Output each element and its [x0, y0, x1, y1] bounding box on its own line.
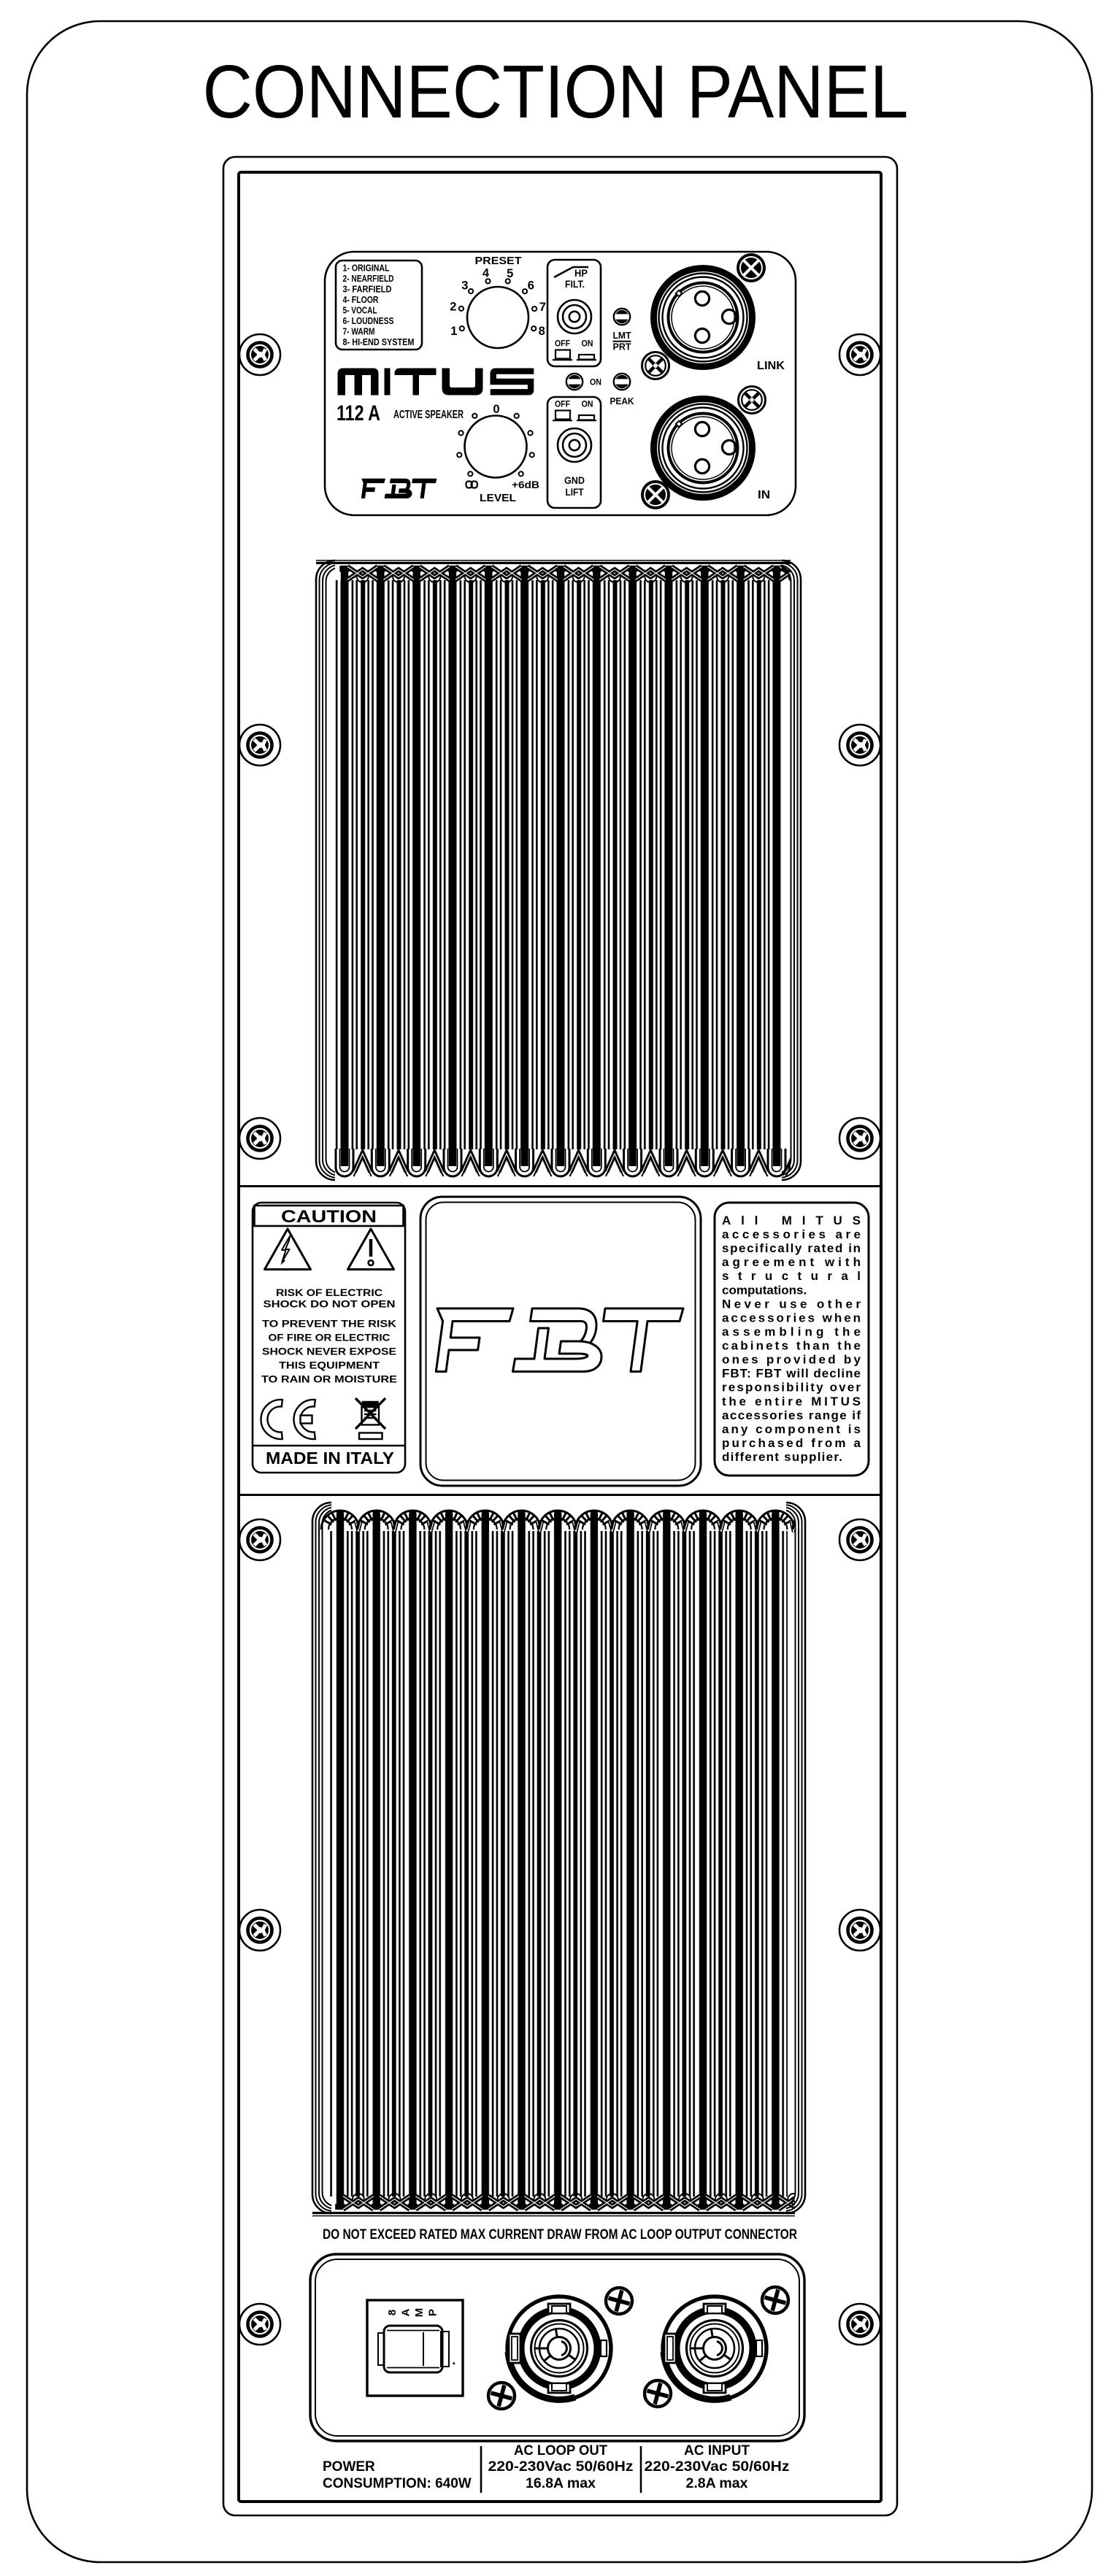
svg-text:3: 3 — [461, 279, 468, 293]
svg-text:4- FLOOR: 4- FLOOR — [343, 295, 379, 305]
svg-text:220-230Vac 50/60Hz: 220-230Vac 50/60Hz — [645, 2459, 790, 2475]
svg-text:LIFT: LIFT — [566, 487, 585, 498]
svg-text:CAUTION: CAUTION — [281, 1207, 377, 1227]
svg-text:3- FARFIELD: 3- FARFIELD — [343, 285, 392, 295]
svg-text:LINK: LINK — [757, 360, 785, 372]
svg-text:computations.: computations. — [722, 1283, 807, 1297]
svg-text:8- HI-END SYSTEM: 8- HI-END SYSTEM — [343, 337, 415, 347]
svg-text:PRT: PRT — [613, 342, 631, 352]
svg-text:MADE IN ITALY: MADE IN ITALY — [266, 1449, 394, 1468]
svg-text:1- ORIGINAL: 1- ORIGINAL — [343, 263, 390, 274]
svg-text:4: 4 — [483, 267, 490, 280]
svg-text:TO PREVENT THE RISK: TO PREVENT THE RISK — [262, 1319, 396, 1330]
svg-text:THIS EQUIPMENT: THIS EQUIPMENT — [279, 1360, 380, 1371]
svg-text:cabinets than the: cabinets than the — [722, 1339, 861, 1353]
svg-text:CONSUMPTION: 640W: CONSUMPTION: 640W — [323, 2476, 472, 2491]
svg-text:DO NOT EXCEED RATED MAX CURREN: DO NOT EXCEED RATED MAX CURRENT DRAW FRO… — [323, 2227, 797, 2243]
svg-text:2- NEARFIELD: 2- NEARFIELD — [343, 274, 394, 284]
svg-text:AC LOOP OUT: AC LOOP OUT — [514, 2443, 607, 2459]
svg-text:AC INPUT: AC INPUT — [684, 2443, 750, 2459]
svg-text:TO RAIN OR MOISTURE: TO RAIN OR MOISTURE — [261, 1374, 397, 1385]
svg-text:SHOCK DO NOT OPEN: SHOCK DO NOT OPEN — [264, 1299, 396, 1310]
svg-text:HP: HP — [574, 268, 588, 279]
svg-text:+6dB: +6dB — [512, 479, 539, 490]
svg-text:POWER: POWER — [323, 2459, 375, 2475]
svg-text:ON: ON — [582, 340, 593, 349]
svg-text:different supplier.: different supplier. — [722, 1450, 842, 1464]
svg-text:6: 6 — [528, 279, 534, 293]
svg-text:SHOCK NEVER EXPOSE: SHOCK NEVER EXPOSE — [262, 1346, 396, 1357]
svg-text:OF FIRE OR ELECTRIC: OF FIRE OR ELECTRIC — [269, 1333, 391, 1343]
svg-text:112 A: 112 A — [337, 401, 380, 425]
svg-text:GND: GND — [564, 475, 585, 486]
svg-text:PRESET: PRESET — [475, 255, 522, 267]
svg-text:CONNECTION PANEL: CONNECTION PANEL — [203, 50, 909, 134]
svg-text:responsibility over: responsibility over — [722, 1381, 861, 1395]
svg-text:7- WARM: 7- WARM — [343, 327, 375, 337]
svg-text:P: P — [427, 2309, 439, 2316]
svg-text:LMT: LMT — [613, 331, 631, 341]
svg-text:ON: ON — [590, 379, 601, 387]
svg-text:accessories range if: accessories range if — [722, 1408, 861, 1422]
svg-text:ACTIVE SPEAKER: ACTIVE SPEAKER — [393, 409, 464, 421]
svg-text:5: 5 — [507, 267, 513, 280]
svg-text:FBT: FBT will decline: FBT: FBT will decline — [722, 1367, 861, 1381]
svg-text:220-230Vac 50/60Hz: 220-230Vac 50/60Hz — [488, 2459, 634, 2475]
svg-text:All MITUS: All MITUS — [722, 1214, 861, 1227]
svg-text:5- VOCAL: 5- VOCAL — [343, 306, 377, 316]
svg-text:0: 0 — [493, 403, 499, 416]
svg-text:M: M — [413, 2308, 426, 2318]
svg-text:1: 1 — [450, 325, 457, 338]
svg-text:8: 8 — [539, 325, 545, 338]
svg-text:16.8A max: 16.8A max — [526, 2476, 596, 2491]
svg-text:7: 7 — [539, 301, 546, 314]
svg-text:OFF: OFF — [555, 401, 570, 409]
svg-text:IN: IN — [758, 489, 770, 501]
svg-text:purchased from a: purchased from a — [722, 1436, 861, 1450]
svg-text:LEVEL: LEVEL — [480, 492, 516, 504]
svg-text:8: 8 — [386, 2310, 399, 2315]
svg-text:A: A — [400, 2308, 412, 2316]
svg-text:6- LOUDNESS: 6- LOUDNESS — [343, 316, 394, 326]
svg-text:specifically rated in: specifically rated in — [722, 1241, 861, 1255]
svg-text:ON: ON — [582, 401, 593, 409]
svg-text:PEAK: PEAK — [610, 396, 635, 406]
svg-text:2: 2 — [450, 301, 456, 314]
svg-text:OFF: OFF — [555, 340, 570, 349]
svg-text:2.8A max: 2.8A max — [686, 2476, 748, 2491]
svg-text:RISK OF ELECTRIC: RISK OF ELECTRIC — [276, 1287, 382, 1298]
svg-text:any component is: any component is — [722, 1422, 861, 1436]
svg-text:FILT.: FILT. — [565, 279, 585, 290]
